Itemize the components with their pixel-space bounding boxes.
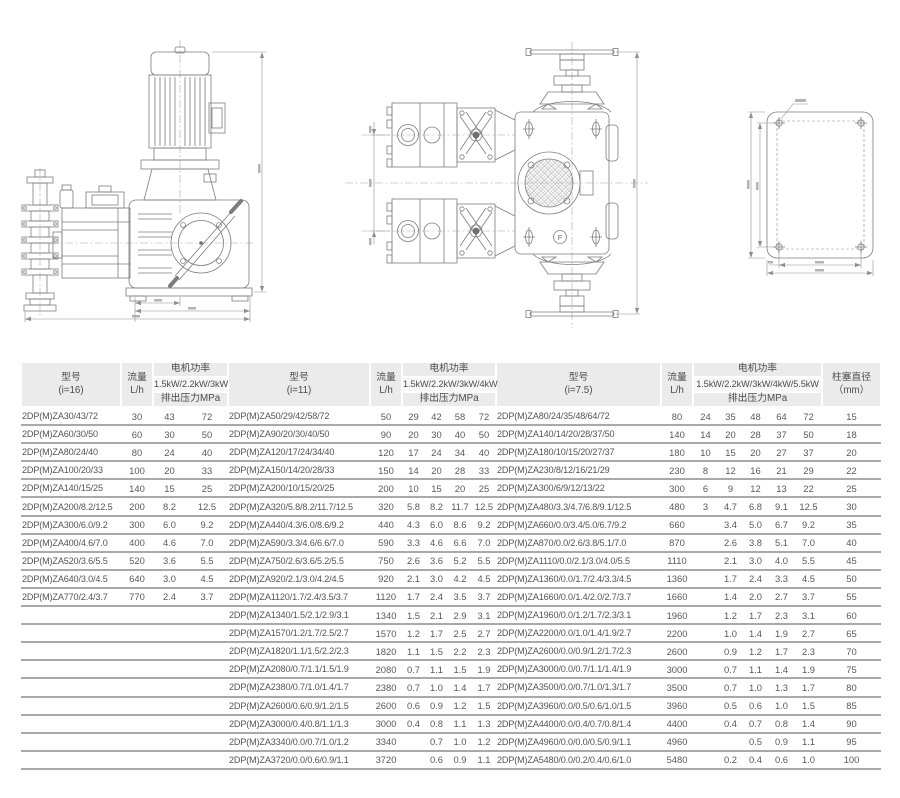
value-cell: 0.9 — [425, 697, 448, 715]
value-cell — [693, 751, 718, 769]
value-cell: 1.0 — [425, 678, 448, 696]
value-cell — [153, 624, 186, 642]
value-cell: 4.6 — [153, 534, 186, 552]
spec-table-header: 型号(i=16) 流量L/h 电机功率 型号(i=11) 流量L/h 电机功率 … — [21, 362, 881, 407]
value-cell — [186, 715, 228, 733]
value-cell: 3720 — [370, 751, 402, 769]
value-cell: 7.0 — [472, 534, 496, 552]
value-cell: 300 — [661, 479, 693, 497]
value-cell: 24 — [693, 407, 718, 425]
value-cell: 400 — [121, 534, 153, 552]
table-row: 2DP(M)ZA100/20/3310020332DP(M)ZA150/14/2… — [21, 461, 881, 479]
table-row: 2DP(M)ZA60/30/506030502DP(M)ZA90/20/30/4… — [21, 425, 881, 443]
value-cell: 1.4 — [718, 588, 743, 606]
value-cell: 6.7 — [768, 516, 795, 534]
table-row: 2DP(M)ZA1340/1.5/2.1/2.9/3.113401.52.12.… — [21, 606, 881, 624]
value-cell: 50 — [186, 425, 228, 443]
value-cell: 4.5 — [795, 570, 822, 588]
value-cell — [121, 660, 153, 678]
value-cell: 2.6 — [402, 552, 425, 570]
model-cell: 2DP(M)ZA4960/0.0/0.0/0.5/0.9/1.1 — [496, 733, 661, 751]
value-cell: 3960 — [661, 697, 693, 715]
value-cell: 72 — [795, 407, 822, 425]
model-cell: 2DP(M)ZA2380/0.7/1.0/1.4/1.7 — [228, 678, 370, 696]
value-cell: 1.2 — [402, 624, 425, 642]
model-cell: 2DP(M)ZA750/2.6/3.6/5.2/5.5 — [228, 552, 370, 570]
model-cell: 2DP(M)ZA1570/1.2/1.7/2.5/2.7 — [228, 624, 370, 642]
value-cell — [186, 660, 228, 678]
value-cell: 1.1 — [743, 660, 768, 678]
table-row: 2DP(M)ZA2080/0.7/1.1/1.5/1.920800.71.11.… — [21, 660, 881, 678]
value-cell: 1.0 — [795, 751, 822, 769]
value-cell: 120 — [370, 443, 402, 461]
value-cell: 0.5 — [743, 733, 768, 751]
value-cell: 4.5 — [472, 570, 496, 588]
value-cell — [693, 660, 718, 678]
model-cell: 2DP(M)ZA2600/0.6/0.9/1.2/1.5 — [228, 697, 370, 715]
value-cell: 43 — [153, 407, 186, 425]
model-cell — [21, 624, 121, 642]
model-cell: 2DP(M)ZA440/4.3/6.0/8.6/9.2 — [228, 516, 370, 534]
value-cell: 1.4 — [743, 624, 768, 642]
value-cell — [186, 624, 228, 642]
value-cell: 1.7 — [768, 642, 795, 660]
model-cell: 2DP(M)ZA3340/0.0/0.7/1.0/1.2 — [228, 733, 370, 751]
value-cell: 4.0 — [768, 552, 795, 570]
value-cell: 4400 — [661, 715, 693, 733]
value-cell: 0.7 — [743, 715, 768, 733]
value-cell: 3500 — [661, 678, 693, 696]
model-cell: 2DP(M)ZA200/10/15/20/25 — [228, 479, 370, 497]
model-cell: 2DP(M)ZA2080/0.7/1.1/1.5/1.9 — [228, 660, 370, 678]
model-cell: 2DP(M)ZA4400/0.0/0.4/0.7/0.8/1.4 — [496, 715, 661, 733]
value-cell: 200 — [370, 479, 402, 497]
model-cell: 2DP(M)ZA60/30/50 — [21, 425, 121, 443]
model-header-i75: 型号(i=7.5) — [496, 362, 661, 407]
value-cell: 520 — [121, 552, 153, 570]
value-cell: 50 — [370, 407, 402, 425]
value-cell — [718, 733, 743, 751]
value-cell: 200 — [121, 497, 153, 515]
value-cell: 3000 — [661, 660, 693, 678]
value-cell: 1.5 — [472, 697, 496, 715]
value-cell: 22 — [795, 479, 822, 497]
value-cell: 140 — [661, 425, 693, 443]
model-cell — [21, 715, 121, 733]
value-cell: 2.4 — [425, 588, 448, 606]
value-cell: 3.1 — [472, 606, 496, 624]
value-cell: 3000 — [370, 715, 402, 733]
value-cell: 4960 — [661, 733, 693, 751]
value-cell: 1.3 — [472, 715, 496, 733]
value-cell: 8.2 — [153, 497, 186, 515]
value-cell: 8.6 — [448, 516, 472, 534]
value-cell: 1.2 — [743, 642, 768, 660]
model-cell: 2DP(M)ZA30/43/72 — [21, 407, 121, 425]
value-cell: 3.6 — [153, 552, 186, 570]
value-cell: 14 — [693, 425, 718, 443]
value-cell: 5480 — [661, 751, 693, 769]
value-cell: 6.0 — [153, 516, 186, 534]
value-cell: 1.1 — [402, 642, 425, 660]
value-cell: 8 — [693, 461, 718, 479]
model-cell: 2DP(M)ZA870/0.0/2.6/3.8/5.1/7.0 — [496, 534, 661, 552]
value-cell: 640 — [121, 570, 153, 588]
model-cell: 2DP(M)ZA200/8.2/12.5 — [21, 497, 121, 515]
value-cell — [121, 606, 153, 624]
kw-header-i11: 1.5kW/2.2kW/3kW/4kW — [402, 377, 496, 392]
value-cell: 2.9 — [448, 606, 472, 624]
value-cell: 20 — [822, 443, 881, 461]
model-cell — [21, 697, 121, 715]
model-cell: 2DP(M)ZA320/5.8/8.2/11.7/12.5 — [228, 497, 370, 515]
model-cell — [21, 733, 121, 751]
value-cell: 80 — [822, 678, 881, 696]
value-cell: 6.0 — [425, 516, 448, 534]
table-row: 2DP(M)ZA3720/0.0/0.6/0.9/1.137200.60.91.… — [21, 751, 881, 769]
value-cell: 0.8 — [768, 715, 795, 733]
value-cell: 15 — [822, 407, 881, 425]
table-row: 2DP(M)ZA3340/0.0/0.7/1.0/1.233400.71.01.… — [21, 733, 881, 751]
value-cell: 2.4 — [153, 588, 186, 606]
model-cell: 2DP(M)ZA3000/0.4/0.8/1.1/1.3 — [228, 715, 370, 733]
value-cell: 1820 — [370, 642, 402, 660]
value-cell: 180 — [661, 443, 693, 461]
value-cell: 40 — [448, 425, 472, 443]
model-cell: 2DP(M)ZA480/3.3/4.7/6.8/9.1/12.5 — [496, 497, 661, 515]
value-cell: 48 — [743, 407, 768, 425]
value-cell: 0.8 — [425, 715, 448, 733]
value-cell: 2600 — [661, 642, 693, 660]
value-cell: 140 — [121, 479, 153, 497]
base-plate-drawing — [747, 99, 873, 276]
value-cell: 9.2 — [186, 516, 228, 534]
value-cell: 1110 — [661, 552, 693, 570]
value-cell — [693, 733, 718, 751]
model-cell: 2DP(M)ZA300/6.0/9.2 — [21, 516, 121, 534]
value-cell: 3.3 — [768, 570, 795, 588]
value-cell: 12.5 — [795, 497, 822, 515]
model-cell: 2DP(M)ZA3720/0.0/0.6/0.9/1.1 — [228, 751, 370, 769]
value-cell: 35 — [822, 516, 881, 534]
flow-header-i75: 流量L/h — [661, 362, 693, 407]
value-cell: 95 — [822, 733, 881, 751]
value-cell: 2.3 — [472, 642, 496, 660]
value-cell — [693, 552, 718, 570]
value-cell: 1340 — [370, 606, 402, 624]
value-cell: 0.6 — [402, 697, 425, 715]
value-cell: 2.4 — [743, 570, 768, 588]
value-cell: 3.7 — [795, 588, 822, 606]
value-cell: 10 — [693, 443, 718, 461]
table-row: 2DP(M)ZA1820/1.1/1.5/2.2/2.318201.11.52.… — [21, 642, 881, 660]
model-cell: 2DP(M)ZA1960/0.0/1.2/1.7/2.3/3.1 — [496, 606, 661, 624]
value-cell: 3.6 — [425, 552, 448, 570]
value-cell: 33 — [186, 461, 228, 479]
model-cell: 2DP(M)ZA230/8/12/16/21/29 — [496, 461, 661, 479]
value-cell: 45 — [822, 552, 881, 570]
value-cell: 34 — [448, 443, 472, 461]
value-cell: 920 — [370, 570, 402, 588]
model-cell: 2DP(M)ZA1340/1.5/2.1/2.9/3.1 — [228, 606, 370, 624]
value-cell: 5.5 — [186, 552, 228, 570]
model-cell: 2DP(M)ZA590/3.3/4.6/6.6/7.0 — [228, 534, 370, 552]
table-row: 2DP(M)ZA400/4.6/7.04004.67.02DP(M)ZA590/… — [21, 534, 881, 552]
value-cell: 13 — [768, 479, 795, 497]
model-cell: 2DP(M)ZA2600/0.0/0.9/1.2/1.7/2.3 — [496, 642, 661, 660]
value-cell: 7.0 — [795, 534, 822, 552]
value-cell: 8.2 — [425, 497, 448, 515]
value-cell: 4.6 — [425, 534, 448, 552]
value-cell: 0.7 — [425, 733, 448, 751]
value-cell: 90 — [370, 425, 402, 443]
value-cell: 4.3 — [402, 516, 425, 534]
value-cell — [186, 733, 228, 751]
value-cell: 660 — [661, 516, 693, 534]
value-cell: 0.4 — [402, 715, 425, 733]
value-cell: 20 — [718, 425, 743, 443]
value-cell: 33 — [472, 461, 496, 479]
value-cell — [186, 642, 228, 660]
value-cell: 6 — [693, 479, 718, 497]
value-cell: 1.0 — [448, 733, 472, 751]
value-cell: 80 — [661, 407, 693, 425]
value-cell: 1.5 — [795, 697, 822, 715]
table-row: 2DP(M)ZA640/3.0/4.56403.04.52DP(M)ZA920/… — [21, 570, 881, 588]
value-cell: 80 — [121, 443, 153, 461]
value-cell — [693, 534, 718, 552]
value-cell: 12 — [743, 479, 768, 497]
value-cell: 2.7 — [472, 624, 496, 642]
model-cell: 2DP(M)ZA1360/0.0/1.7/2.4/3.3/4.5 — [496, 570, 661, 588]
model-cell: 2DP(M)ZA1110/0.0/2.1/3.0/4.0/5.5 — [496, 552, 661, 570]
value-cell: 3.3 — [402, 534, 425, 552]
value-cell: 2.5 — [448, 624, 472, 642]
value-cell: 1.9 — [795, 660, 822, 678]
value-cell — [153, 715, 186, 733]
value-cell: 0.4 — [743, 751, 768, 769]
value-cell: 14 — [402, 461, 425, 479]
model-cell: 2DP(M)ZA300/6/9/12/13/22 — [496, 479, 661, 497]
value-cell: 1.7 — [472, 678, 496, 696]
value-cell — [186, 606, 228, 624]
value-cell — [121, 751, 153, 769]
value-cell — [153, 751, 186, 769]
value-cell: 0.6 — [768, 751, 795, 769]
model-cell: 2DP(M)ZA140/15/25 — [21, 479, 121, 497]
value-cell: 2.2 — [448, 642, 472, 660]
value-cell: 0.6 — [425, 751, 448, 769]
pump-side-view-drawing — [20, 40, 266, 322]
value-cell: 2.3 — [795, 642, 822, 660]
value-cell: 1.5 — [402, 606, 425, 624]
model-cell: 2DP(M)ZA1660/0.0/1.4/2.0/2.7/3.7 — [496, 588, 661, 606]
value-cell: 440 — [370, 516, 402, 534]
value-cell: 0.4 — [718, 715, 743, 733]
table-row: 2DP(M)ZA30/43/723043722DP(M)ZA50/29/42/5… — [21, 407, 881, 425]
value-cell: 12.5 — [472, 497, 496, 515]
value-cell: 750 — [370, 552, 402, 570]
value-cell — [153, 642, 186, 660]
value-cell: 64 — [768, 407, 795, 425]
value-cell: 50 — [822, 570, 881, 588]
value-cell — [121, 733, 153, 751]
kw-header-i16: 1.5kW/2.2kW/3kW — [153, 377, 228, 392]
value-cell: 1.2 — [448, 697, 472, 715]
value-cell: 90 — [822, 715, 881, 733]
value-cell: 15 — [425, 479, 448, 497]
value-cell: 55 — [822, 588, 881, 606]
value-cell: 1360 — [661, 570, 693, 588]
model-cell: 2DP(M)ZA120/17/24/34/40 — [228, 443, 370, 461]
model-cell: 2DP(M)ZA3960/0.0/0.5/0.6/1.0/1.5 — [496, 697, 661, 715]
value-cell: 2.6 — [718, 534, 743, 552]
catalog-page: F — [0, 0, 900, 798]
value-cell: 5.0 — [743, 516, 768, 534]
model-cell: 2DP(M)ZA150/14/20/28/33 — [228, 461, 370, 479]
value-cell: 0.9 — [768, 733, 795, 751]
value-cell: 11.7 — [448, 497, 472, 515]
value-cell — [153, 733, 186, 751]
table-row: 2DP(M)ZA3000/0.4/0.8/1.1/1.330000.40.81.… — [21, 715, 881, 733]
value-cell: 3 — [693, 497, 718, 515]
pressure-header-i16: 排出压力MPa — [153, 392, 228, 407]
value-cell: 20 — [425, 461, 448, 479]
value-cell: 480 — [661, 497, 693, 515]
value-cell: 300 — [121, 516, 153, 534]
value-cell: 100 — [822, 751, 881, 769]
value-cell: 1.1 — [448, 715, 472, 733]
value-cell: 22 — [822, 461, 881, 479]
value-cell: 5.2 — [448, 552, 472, 570]
technical-drawings: F — [0, 0, 900, 356]
table-row: 2DP(M)ZA520/3.6/5.55203.65.52DP(M)ZA750/… — [21, 552, 881, 570]
model-cell: 2DP(M)ZA920/2.1/3.0/4.2/4.5 — [228, 570, 370, 588]
value-cell: 1.7 — [425, 624, 448, 642]
value-cell: 16 — [743, 461, 768, 479]
value-cell: 1.3 — [768, 678, 795, 696]
value-cell: 72 — [186, 407, 228, 425]
value-cell: 9.2 — [795, 516, 822, 534]
value-cell: 0.9 — [718, 642, 743, 660]
value-cell: 1.5 — [448, 660, 472, 678]
value-cell: 40 — [186, 443, 228, 461]
value-cell — [153, 660, 186, 678]
model-cell — [21, 660, 121, 678]
value-cell: 1.7 — [795, 678, 822, 696]
value-cell: 4.7 — [718, 497, 743, 515]
model-cell: 2DP(M)ZA100/20/33 — [21, 461, 121, 479]
table-row: 2DP(M)ZA1570/1.2/1.7/2.5/2.715701.21.72.… — [21, 624, 881, 642]
value-cell: 1.7 — [718, 570, 743, 588]
table-row: 2DP(M)ZA2380/0.7/1.0/1.4/1.723800.71.01.… — [21, 678, 881, 696]
value-cell: 37 — [768, 425, 795, 443]
value-cell: 17 — [402, 443, 425, 461]
value-cell: 0.6 — [743, 697, 768, 715]
value-cell: 1.4 — [795, 715, 822, 733]
model-cell: 2DP(M)ZA400/4.6/7.0 — [21, 534, 121, 552]
model-cell: 2DP(M)ZA1820/1.1/1.5/2.2/2.3 — [228, 642, 370, 660]
value-cell: 25 — [186, 479, 228, 497]
value-cell: 0.7 — [402, 660, 425, 678]
value-cell: 5.8 — [402, 497, 425, 515]
model-cell: 2DP(M)ZA3000/0.0/0.7/1.1/1.4/1.9 — [496, 660, 661, 678]
value-cell: 1120 — [370, 588, 402, 606]
value-cell — [186, 751, 228, 769]
value-cell: 50 — [472, 425, 496, 443]
table-row: 2DP(M)ZA80/24/408024402DP(M)ZA120/17/24/… — [21, 443, 881, 461]
value-cell: 1.7 — [402, 588, 425, 606]
value-cell: 1.4 — [768, 660, 795, 678]
value-cell: 30 — [425, 425, 448, 443]
value-cell: 0.7 — [402, 678, 425, 696]
value-cell: 40 — [472, 443, 496, 461]
value-cell — [693, 588, 718, 606]
value-cell: 20 — [402, 425, 425, 443]
value-cell: 28 — [448, 461, 472, 479]
value-cell — [153, 606, 186, 624]
value-cell: 3.4 — [718, 516, 743, 534]
model-cell: 2DP(M)ZA80/24/40 — [21, 443, 121, 461]
value-cell — [693, 642, 718, 660]
power-header-i16: 电机功率 — [153, 362, 228, 377]
value-cell: 2.1 — [718, 552, 743, 570]
value-cell — [153, 697, 186, 715]
value-cell — [402, 733, 425, 751]
value-cell: 1.5 — [425, 642, 448, 660]
value-cell: 590 — [370, 534, 402, 552]
value-cell: 2600 — [370, 697, 402, 715]
value-cell: 0.2 — [718, 751, 743, 769]
model-cell: 2DP(M)ZA3500/0.0/0.7/1.0/1.3/1.7 — [496, 678, 661, 696]
model-header-i11: 型号(i=11) — [228, 362, 370, 407]
value-cell: 20 — [448, 479, 472, 497]
value-cell — [693, 715, 718, 733]
value-cell: 30 — [121, 407, 153, 425]
f-marker-label: F — [558, 233, 563, 242]
value-cell: 150 — [370, 461, 402, 479]
value-cell — [121, 642, 153, 660]
value-cell: 60 — [121, 425, 153, 443]
value-cell — [153, 678, 186, 696]
value-cell: 2200 — [661, 624, 693, 642]
table-row: 2DP(M)ZA200/8.2/12.52008.212.52DP(M)ZA32… — [21, 497, 881, 515]
value-cell: 0.9 — [448, 751, 472, 769]
value-cell — [693, 678, 718, 696]
value-cell — [693, 570, 718, 588]
value-cell: 20 — [743, 443, 768, 461]
pump-top-view-drawing: F — [345, 42, 648, 328]
value-cell: 0.5 — [718, 697, 743, 715]
value-cell: 2.1 — [402, 570, 425, 588]
flow-header-i11: 流量L/h — [370, 362, 402, 407]
value-cell: 1.1 — [472, 751, 496, 769]
value-cell — [693, 697, 718, 715]
power-header-i75: 电机功率 — [693, 362, 822, 377]
value-cell: 5.1 — [768, 534, 795, 552]
value-cell: 1.7 — [743, 606, 768, 624]
value-cell: 72 — [472, 407, 496, 425]
value-cell: 15 — [153, 479, 186, 497]
model-cell: 2DP(M)ZA2200/0.0/1.0/1.4/1.9/2.7 — [496, 624, 661, 642]
value-cell: 58 — [448, 407, 472, 425]
value-cell: 3.0 — [153, 570, 186, 588]
value-cell: 20 — [153, 461, 186, 479]
value-cell: 1.2 — [472, 733, 496, 751]
value-cell: 320 — [370, 497, 402, 515]
value-cell: 2.1 — [425, 606, 448, 624]
value-cell: 28 — [743, 425, 768, 443]
